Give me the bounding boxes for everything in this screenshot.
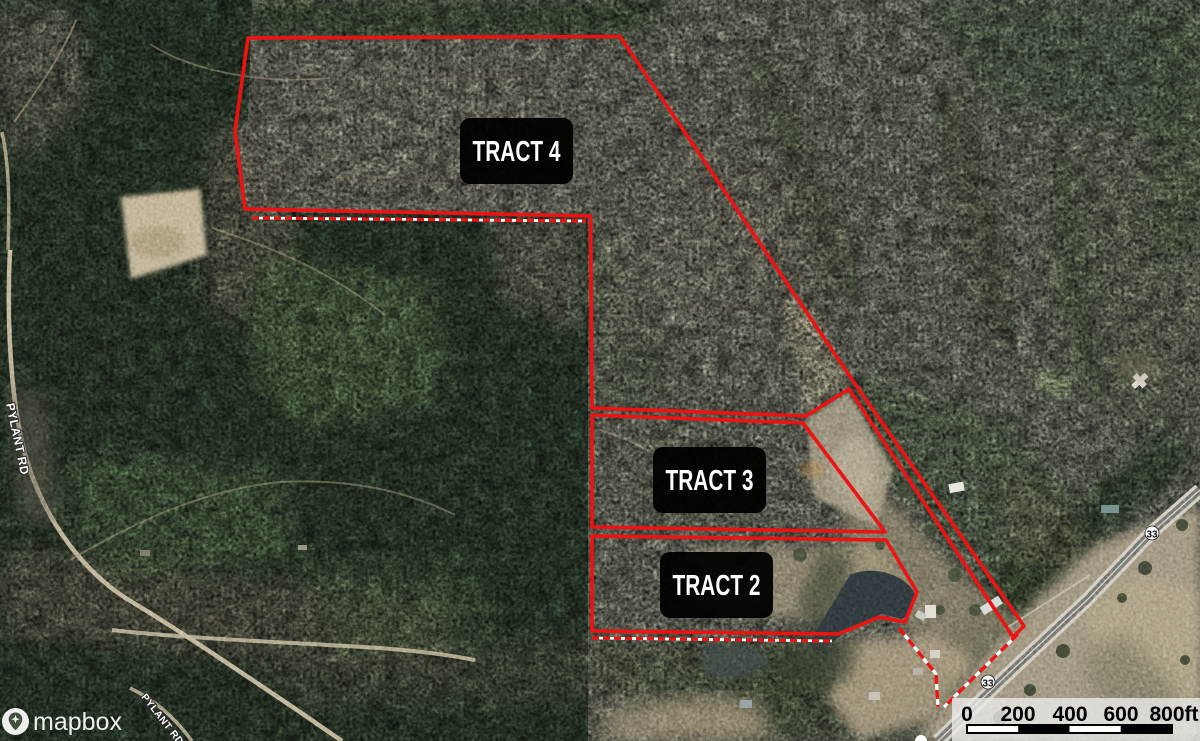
svg-text:400: 400 bbox=[1052, 703, 1087, 726]
svg-text:33: 33 bbox=[1146, 530, 1158, 541]
svg-text:TRACT 3: TRACT 3 bbox=[666, 465, 754, 497]
svg-text:33: 33 bbox=[982, 679, 994, 690]
svg-text:0: 0 bbox=[961, 703, 973, 726]
svg-text:TRACT 4: TRACT 4 bbox=[473, 136, 561, 168]
svg-text:200: 200 bbox=[1000, 703, 1035, 726]
svg-text:600: 600 bbox=[1103, 703, 1138, 726]
svg-text:mapbox: mapbox bbox=[33, 708, 122, 736]
svg-text:TRACT 2: TRACT 2 bbox=[673, 570, 761, 602]
svg-text:800ft: 800ft bbox=[1149, 703, 1198, 726]
